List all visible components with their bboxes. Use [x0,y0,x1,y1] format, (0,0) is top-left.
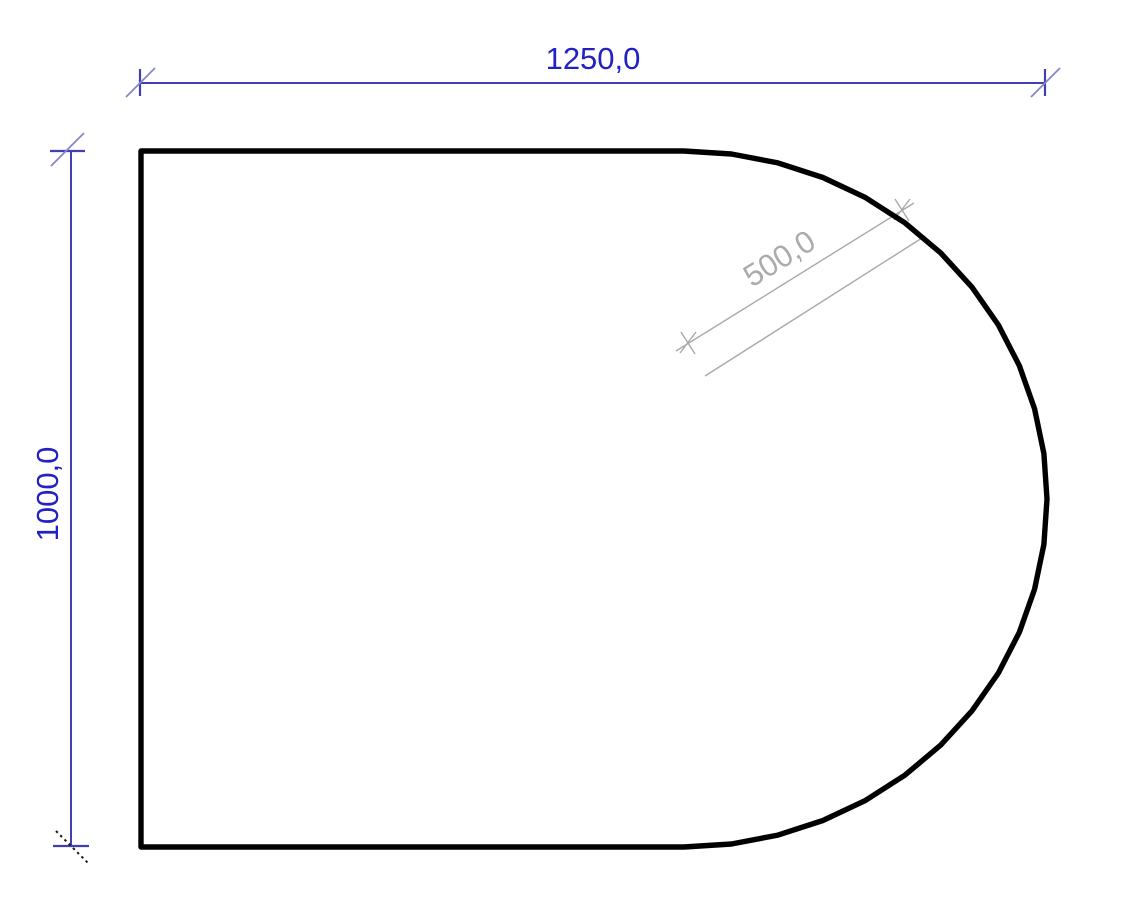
height-dimension: 1000,0 [30,133,89,863]
radius-dimension: 500,0 [676,199,922,376]
height-dimension-label: 1000,0 [30,447,65,542]
radius-dimension-line [676,203,914,351]
drawing-canvas: 1250,0 1000,0 500,0 [0,0,1131,923]
width-dimension: 1250,0 [126,41,1060,97]
cad-drawing: 1250,0 1000,0 500,0 [0,0,1131,923]
height-dimension-slash-top [51,133,84,166]
radius-leader-line [705,238,922,376]
plate-outline [141,151,1047,847]
radius-dimension-label: 500,0 [737,223,821,294]
width-dimension-label: 1250,0 [546,41,641,76]
